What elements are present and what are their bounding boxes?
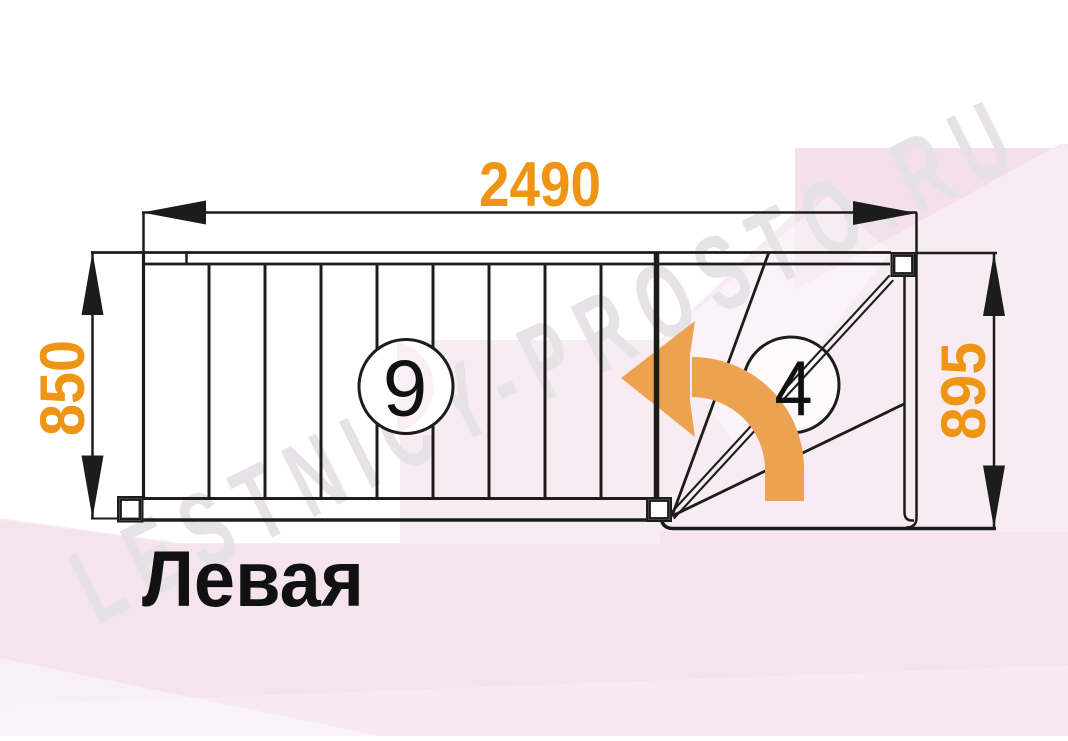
svg-text:4: 4 <box>775 344 813 432</box>
svg-text:Левая: Левая <box>142 534 364 623</box>
svg-text:895: 895 <box>929 342 999 440</box>
svg-text:2490: 2490 <box>479 150 601 220</box>
svg-text:850: 850 <box>28 340 98 436</box>
svg-text:9: 9 <box>383 344 428 433</box>
